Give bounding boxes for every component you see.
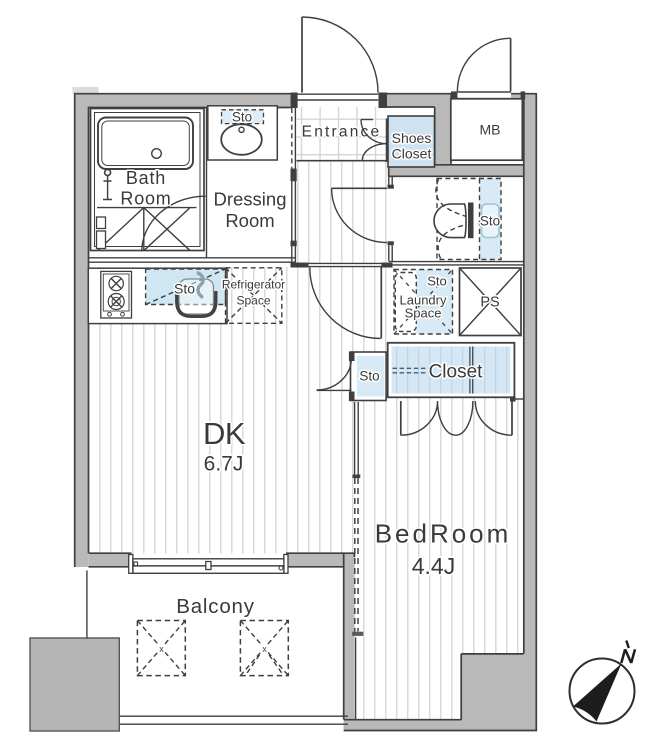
svg-text:x: x — [159, 644, 164, 654]
svg-text:DK: DK — [203, 416, 246, 451]
svg-text:Sto: Sto — [359, 369, 379, 384]
svg-text:6.7J: 6.7J — [204, 453, 244, 476]
svg-text:Sto: Sto — [480, 214, 500, 229]
svg-text:Space: Space — [236, 294, 270, 308]
svg-text:Closet: Closet — [392, 146, 432, 162]
svg-text:Room: Room — [225, 210, 274, 231]
svg-text:Shoes: Shoes — [392, 130, 432, 146]
svg-text:PS: PS — [480, 295, 499, 311]
svg-text:BedRoom: BedRoom — [375, 519, 512, 549]
svg-text:Room: Room — [120, 189, 171, 209]
svg-text:Sto: Sto — [232, 110, 252, 125]
svg-text:Bath: Bath — [126, 168, 166, 188]
svg-text:Space: Space — [405, 306, 442, 321]
svg-text:Refrigerator: Refrigerator — [222, 278, 285, 292]
svg-text:Sto: Sto — [174, 281, 195, 297]
svg-text:Closet: Closet — [429, 362, 484, 383]
svg-text:Dressing: Dressing — [214, 189, 287, 210]
svg-text:Balcony: Balcony — [176, 595, 255, 618]
svg-text:Sto: Sto — [427, 274, 447, 289]
svg-text:x: x — [262, 644, 267, 654]
svg-text:MB: MB — [480, 122, 501, 138]
svg-text:4.4J: 4.4J — [412, 553, 455, 579]
